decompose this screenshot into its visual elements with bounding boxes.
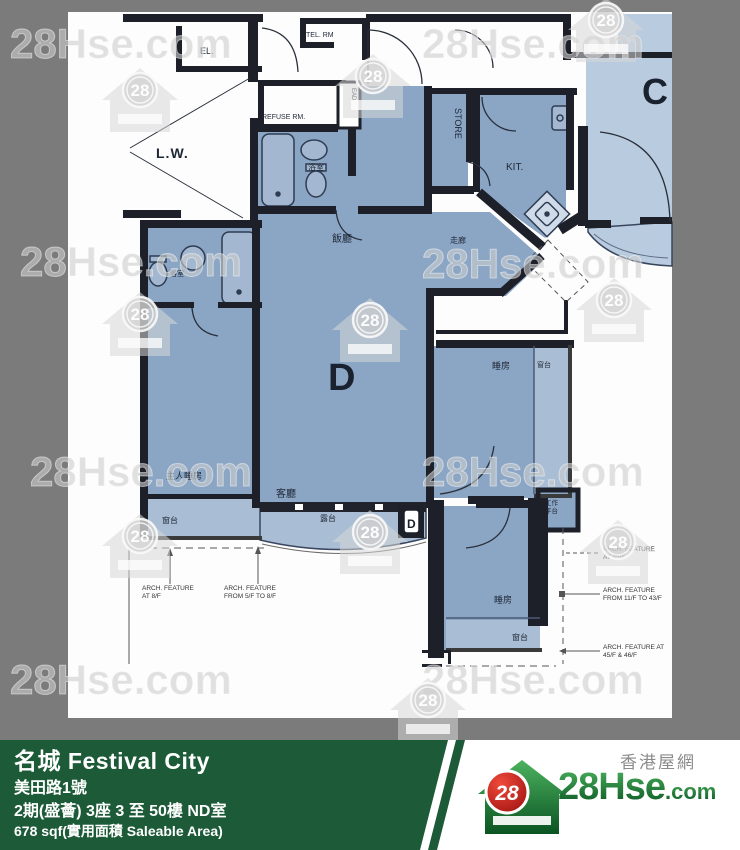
floorplan-image: 28	[0, 0, 740, 740]
label-balcony: 露台	[320, 513, 336, 523]
label-unit-d: D	[328, 357, 355, 399]
property-title: 名城 Festival City	[14, 742, 210, 776]
arch-label-left1-line1: ARCH. FEATURE	[142, 585, 195, 592]
arch-label-right2-line2: FROM 11/F TO 43/F	[603, 595, 662, 602]
watermark-text: 28Hse.com	[30, 448, 252, 495]
label-bathroom-1: 浴室	[308, 162, 324, 172]
label-tel-room: TEL. RM	[306, 32, 334, 39]
floorplan-screenshot: 28	[0, 0, 740, 850]
logo-text-main: 28Hse	[558, 766, 665, 808]
label-kitchen: KIT.	[506, 162, 523, 173]
label-utility-2: 平台	[545, 506, 558, 515]
28hse-logo-text: 28Hse.com	[558, 766, 716, 809]
label-living: 客廳	[276, 487, 296, 500]
watermark-text: 28Hse.com	[10, 20, 232, 67]
label-bedroom-1: 睡房	[492, 360, 510, 371]
28hse-logo-house-icon: 28	[476, 756, 568, 838]
property-area: 678 sqf(實用面積 Saleable Area)	[14, 821, 223, 841]
label-bedroom-1-baywindow: 窗台	[537, 360, 551, 369]
watermark-text: 28Hse.com	[20, 238, 242, 285]
label-refuse-room: REFUSE RM.	[262, 114, 305, 121]
arch-label-left2-line1: ARCH. FEATURE	[224, 585, 277, 592]
label-dining: 飯廳	[332, 232, 352, 245]
door-marker-letter: D	[407, 517, 416, 531]
label-master-baywindow: 窗台	[162, 515, 178, 525]
watermark-text: 28Hse.com	[422, 448, 644, 495]
label-bedroom-2: 睡房	[494, 594, 512, 605]
arch-label-left2-line2: FROM 5/F TO 8/F	[224, 593, 276, 600]
property-address: 美田路1號	[14, 774, 87, 798]
property-phase-unit: 2期(盛薈) 3座 3 至 50樓 ND室	[14, 797, 227, 821]
arch-label-right3-line1: ARCH. FEATURE AT	[603, 644, 664, 651]
label-unit-c: C	[642, 71, 668, 112]
label-store: STORE	[453, 108, 463, 139]
label-lightwell: L.W.	[156, 145, 189, 161]
logo-badge-number: 28	[494, 782, 519, 805]
entrance-door-marker: D	[398, 505, 424, 538]
label-bedroom-2-baywindow: 窗台	[512, 632, 528, 642]
property-info-bar: 名城 Festival City 美田路1號 2期(盛薈) 3座 3 至 50樓…	[0, 740, 740, 850]
watermark-text: 28Hse.com	[422, 240, 644, 287]
watermark-text: 28Hse.com	[10, 656, 232, 703]
watermark-text: 28Hse.com	[422, 656, 644, 703]
arch-label-left1-line2: AT 8/F	[142, 593, 161, 600]
label-utility-1: 工作	[545, 498, 559, 507]
arch-label-right2-line1: ARCH. FEATURE	[603, 587, 656, 594]
logo-text-suffix: .com	[665, 779, 716, 804]
